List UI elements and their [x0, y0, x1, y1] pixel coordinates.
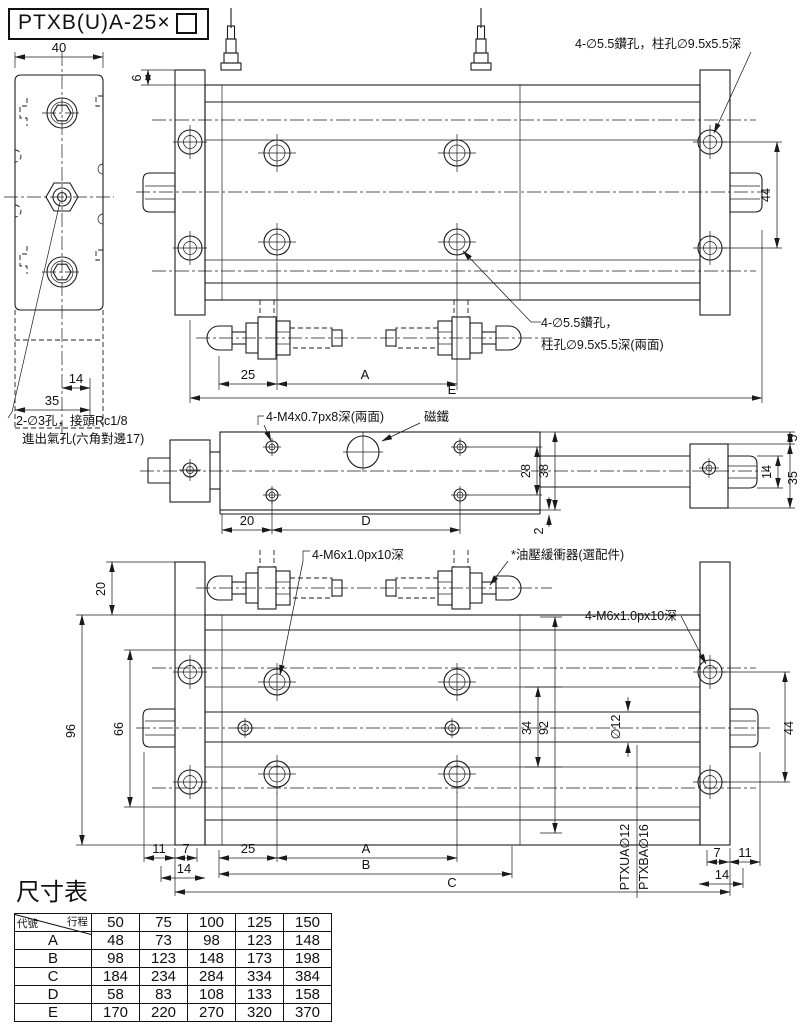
dim-A: A — [361, 367, 370, 382]
dim-B: B — [362, 857, 371, 872]
note-drill-mid-2: 柱孔∅9.5x5.5深(兩面) — [541, 337, 664, 352]
dim-92: 92 — [537, 721, 551, 735]
counterbore-holes — [258, 134, 476, 261]
table-row: A 48 73 98 123 148 — [15, 932, 332, 950]
cell: 108 — [188, 986, 236, 1004]
corner-label-stroke: 行程 — [67, 914, 88, 929]
dim-dia12: ∅12 — [609, 715, 623, 740]
table-row: B 98 123 148 173 198 — [15, 950, 332, 968]
col-header: 100 — [188, 914, 236, 932]
note-damper: *油壓緩衝器(選配件) — [511, 548, 624, 562]
corner-label-code: 代號 — [17, 916, 38, 931]
cell: 234 — [140, 968, 188, 986]
stroke-blank-box — [176, 13, 197, 34]
dimension-table-section: 尺寸表 行程 代號 50 75 100 125 150 A 48 73 98 1… — [14, 872, 332, 1022]
port-note-line2: 進出氣孔(六角對邊17) — [22, 432, 144, 446]
dimension-table: 行程 代號 50 75 100 125 150 A 48 73 98 123 1… — [14, 913, 332, 1022]
cell: 133 — [236, 986, 284, 1004]
cell: 148 — [188, 950, 236, 968]
dim-14r: 14 — [760, 465, 774, 479]
cell: 198 — [284, 950, 332, 968]
note-drill-mid-1: 4-∅5.5鑽孔， — [541, 315, 618, 330]
dim-20: 20 — [240, 513, 254, 528]
part-number-title: PTXB(U)A-25× — [8, 8, 209, 40]
row-label: C — [15, 968, 92, 986]
technical-drawing-page: 40 14 35 2-∅3孔，接頭Rc1/8 進出氣孔(六角對邊17) — [0, 0, 800, 1026]
col-header: 125 — [236, 914, 284, 932]
dim-5: 5 — [786, 434, 800, 441]
dim-14R: 14 — [715, 867, 729, 882]
rod-end-right — [730, 173, 762, 212]
cell: 98 — [92, 950, 140, 968]
dim-Ab: A — [362, 841, 371, 856]
table-title: 尺寸表 — [16, 872, 332, 907]
col-header: 75 — [140, 914, 188, 932]
note-m4: 4-M4x0.7px8深(兩面) — [266, 410, 384, 424]
dim-11R: 11 — [738, 845, 752, 860]
part-number-text: PTXB(U)A-25× — [18, 11, 171, 35]
note-magnet: 磁鐵 — [424, 409, 450, 424]
row-label: D — [15, 986, 92, 1004]
rod-end-left — [143, 173, 175, 212]
port-note-line1: 2-∅3孔，接頭Rc1/8 — [16, 413, 128, 428]
air-fitting-icon — [221, 8, 241, 70]
cell: 370 — [284, 1004, 332, 1022]
dim-38: 38 — [537, 464, 551, 478]
table-row: D 58 83 108 133 158 — [15, 986, 332, 1004]
cell: 83 — [140, 986, 188, 1004]
cell: 58 — [92, 986, 140, 1004]
cell: 334 — [236, 968, 284, 986]
rod-label-ptxba: PTXBA∅16 — [637, 824, 651, 890]
col-header: 50 — [92, 914, 140, 932]
cell: 170 — [92, 1004, 140, 1022]
row-label: B — [15, 950, 92, 968]
row-label: A — [15, 932, 92, 950]
dim-34: 34 — [520, 721, 534, 735]
dim-44b: 44 — [782, 721, 796, 735]
dim-C: C — [447, 875, 456, 890]
rod-end-right — [728, 456, 757, 488]
top-view: 6 44 25 A E 4-∅5.5鑽孔，柱孔∅9.5x5.5深 4-∅5.5鑽… — [130, 8, 782, 403]
cell: 173 — [236, 950, 284, 968]
dim-20b: 20 — [94, 582, 108, 596]
row-label: E — [15, 1004, 92, 1022]
cell: 184 — [92, 968, 140, 986]
dim-7R: 7 — [713, 845, 720, 860]
dim-25: 25 — [241, 367, 255, 382]
dim-7L: 7 — [182, 841, 189, 856]
cell: 284 — [188, 968, 236, 986]
cell: 158 — [284, 986, 332, 1004]
note-m6-bottom: 4-M6x1.0px10深 — [312, 548, 404, 562]
cell: 123 — [140, 950, 188, 968]
dim-66: 66 — [112, 722, 126, 736]
dim-44: 44 — [759, 188, 773, 202]
dim-E: E — [448, 382, 457, 397]
cell: 220 — [140, 1004, 188, 1022]
cell: 384 — [284, 968, 332, 986]
side-view: 40 14 35 2-∅3孔，接頭Rc1/8 進出氣孔(六角對邊17) — [4, 40, 144, 446]
cell: 270 — [188, 1004, 236, 1022]
dim-D: D — [361, 513, 370, 528]
cell: 148 — [284, 932, 332, 950]
table-row: C 184 234 284 334 384 — [15, 968, 332, 986]
dim-11L: 11 — [152, 841, 166, 856]
shock-absorber — [207, 300, 342, 359]
cell: 73 — [140, 932, 188, 950]
bottom-view: 20 96 66 11 7 14 25 A B C 34 92 ∅12 PTXU… — [64, 548, 796, 898]
dim-25b: 25 — [241, 841, 255, 856]
note-m6-right: 4-M6x1.0px10深 — [585, 609, 677, 623]
table-corner-cell: 行程 代號 — [15, 914, 92, 932]
rod-label-ptxua: PTXUA∅12 — [618, 824, 632, 891]
dim-96: 96 — [64, 724, 78, 738]
dim-35r: 35 — [786, 471, 800, 485]
dim-40: 40 — [52, 40, 66, 55]
col-header: 150 — [284, 914, 332, 932]
dim-35: 35 — [45, 393, 59, 408]
dim-14: 14 — [69, 371, 83, 386]
cell: 123 — [236, 932, 284, 950]
note-drill-top: 4-∅5.5鑽孔，柱孔∅9.5x5.5深 — [575, 36, 741, 51]
table-header-row: 行程 代號 50 75 100 125 150 — [15, 914, 332, 932]
cell: 48 — [92, 932, 140, 950]
table-row: E 170 220 270 320 370 — [15, 1004, 332, 1022]
dim-6: 6 — [130, 74, 144, 81]
cell: 320 — [236, 1004, 284, 1022]
end-plate-holes — [173, 125, 727, 265]
dim-28: 28 — [519, 464, 533, 478]
cell: 98 — [188, 932, 236, 950]
dim-2: 2 — [532, 527, 546, 534]
front-view: 28 38 2 5 14 35 20 D 4-M4x0.7px8深(兩面) 磁鐵 — [140, 409, 800, 534]
